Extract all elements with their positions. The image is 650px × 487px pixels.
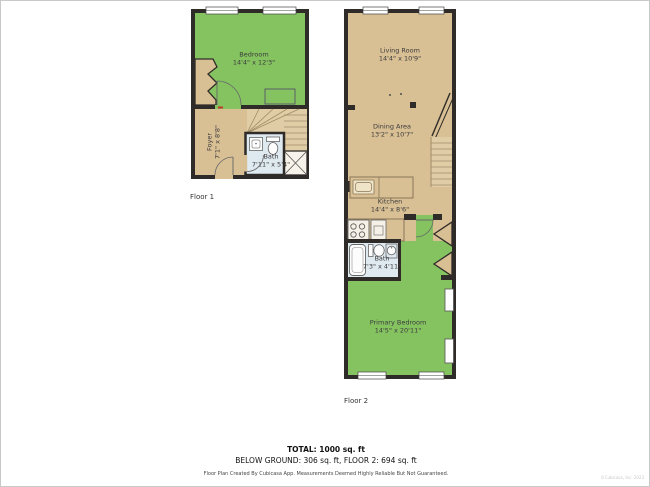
threshold-mark <box>218 107 223 109</box>
stairs <box>431 137 452 187</box>
wall-stub <box>441 275 452 280</box>
wall-niche <box>445 289 454 311</box>
appliance-fixture <box>371 220 386 241</box>
wall-stub <box>344 105 355 110</box>
wall-pillar <box>344 181 350 192</box>
floor2-label: Floor 2 <box>344 397 368 405</box>
bathtub-fixture <box>350 245 366 276</box>
bath1-room <box>244 133 284 175</box>
wall-stub <box>404 214 416 220</box>
sink-fixture <box>386 244 397 258</box>
void-box <box>284 151 307 175</box>
primary-bedroom-floor <box>348 279 452 375</box>
wall-niche <box>445 339 454 363</box>
watermark-text: ©Cubicasa, Inc. 2023 <box>601 475 644 480</box>
toilet-fixture <box>369 245 385 257</box>
wall-stub <box>410 102 416 108</box>
disclaimer-text: Floor Plan Created By Cubicasa App. Meas… <box>1 471 650 477</box>
footer: TOTAL: 1000 sq. ft BELOW GROUND: 306 sq.… <box>1 445 650 477</box>
kitchen-island <box>350 177 413 198</box>
floor2-plan <box>341 3 461 383</box>
total-area-text: TOTAL: 1000 sq. ft <box>1 445 650 454</box>
kitchen-counter <box>348 219 404 241</box>
stove-fixture <box>348 220 369 241</box>
floor-mark <box>400 93 402 95</box>
sink-fixture <box>250 138 263 151</box>
floor1-plan <box>189 3 313 183</box>
floorplan-page: Bedroom 14'4" x 12'3" Foyer 7'1" x 8'8" … <box>0 0 650 487</box>
bedroom-closet-notch <box>195 59 217 105</box>
floor1-label: Floor 1 <box>190 193 214 201</box>
bath2-room <box>344 239 401 281</box>
area-breakdown-text: BELOW GROUND: 306 sq. ft, FLOOR 2: 694 s… <box>1 456 650 465</box>
floor-mark <box>389 94 391 96</box>
wall-stub <box>433 214 442 220</box>
